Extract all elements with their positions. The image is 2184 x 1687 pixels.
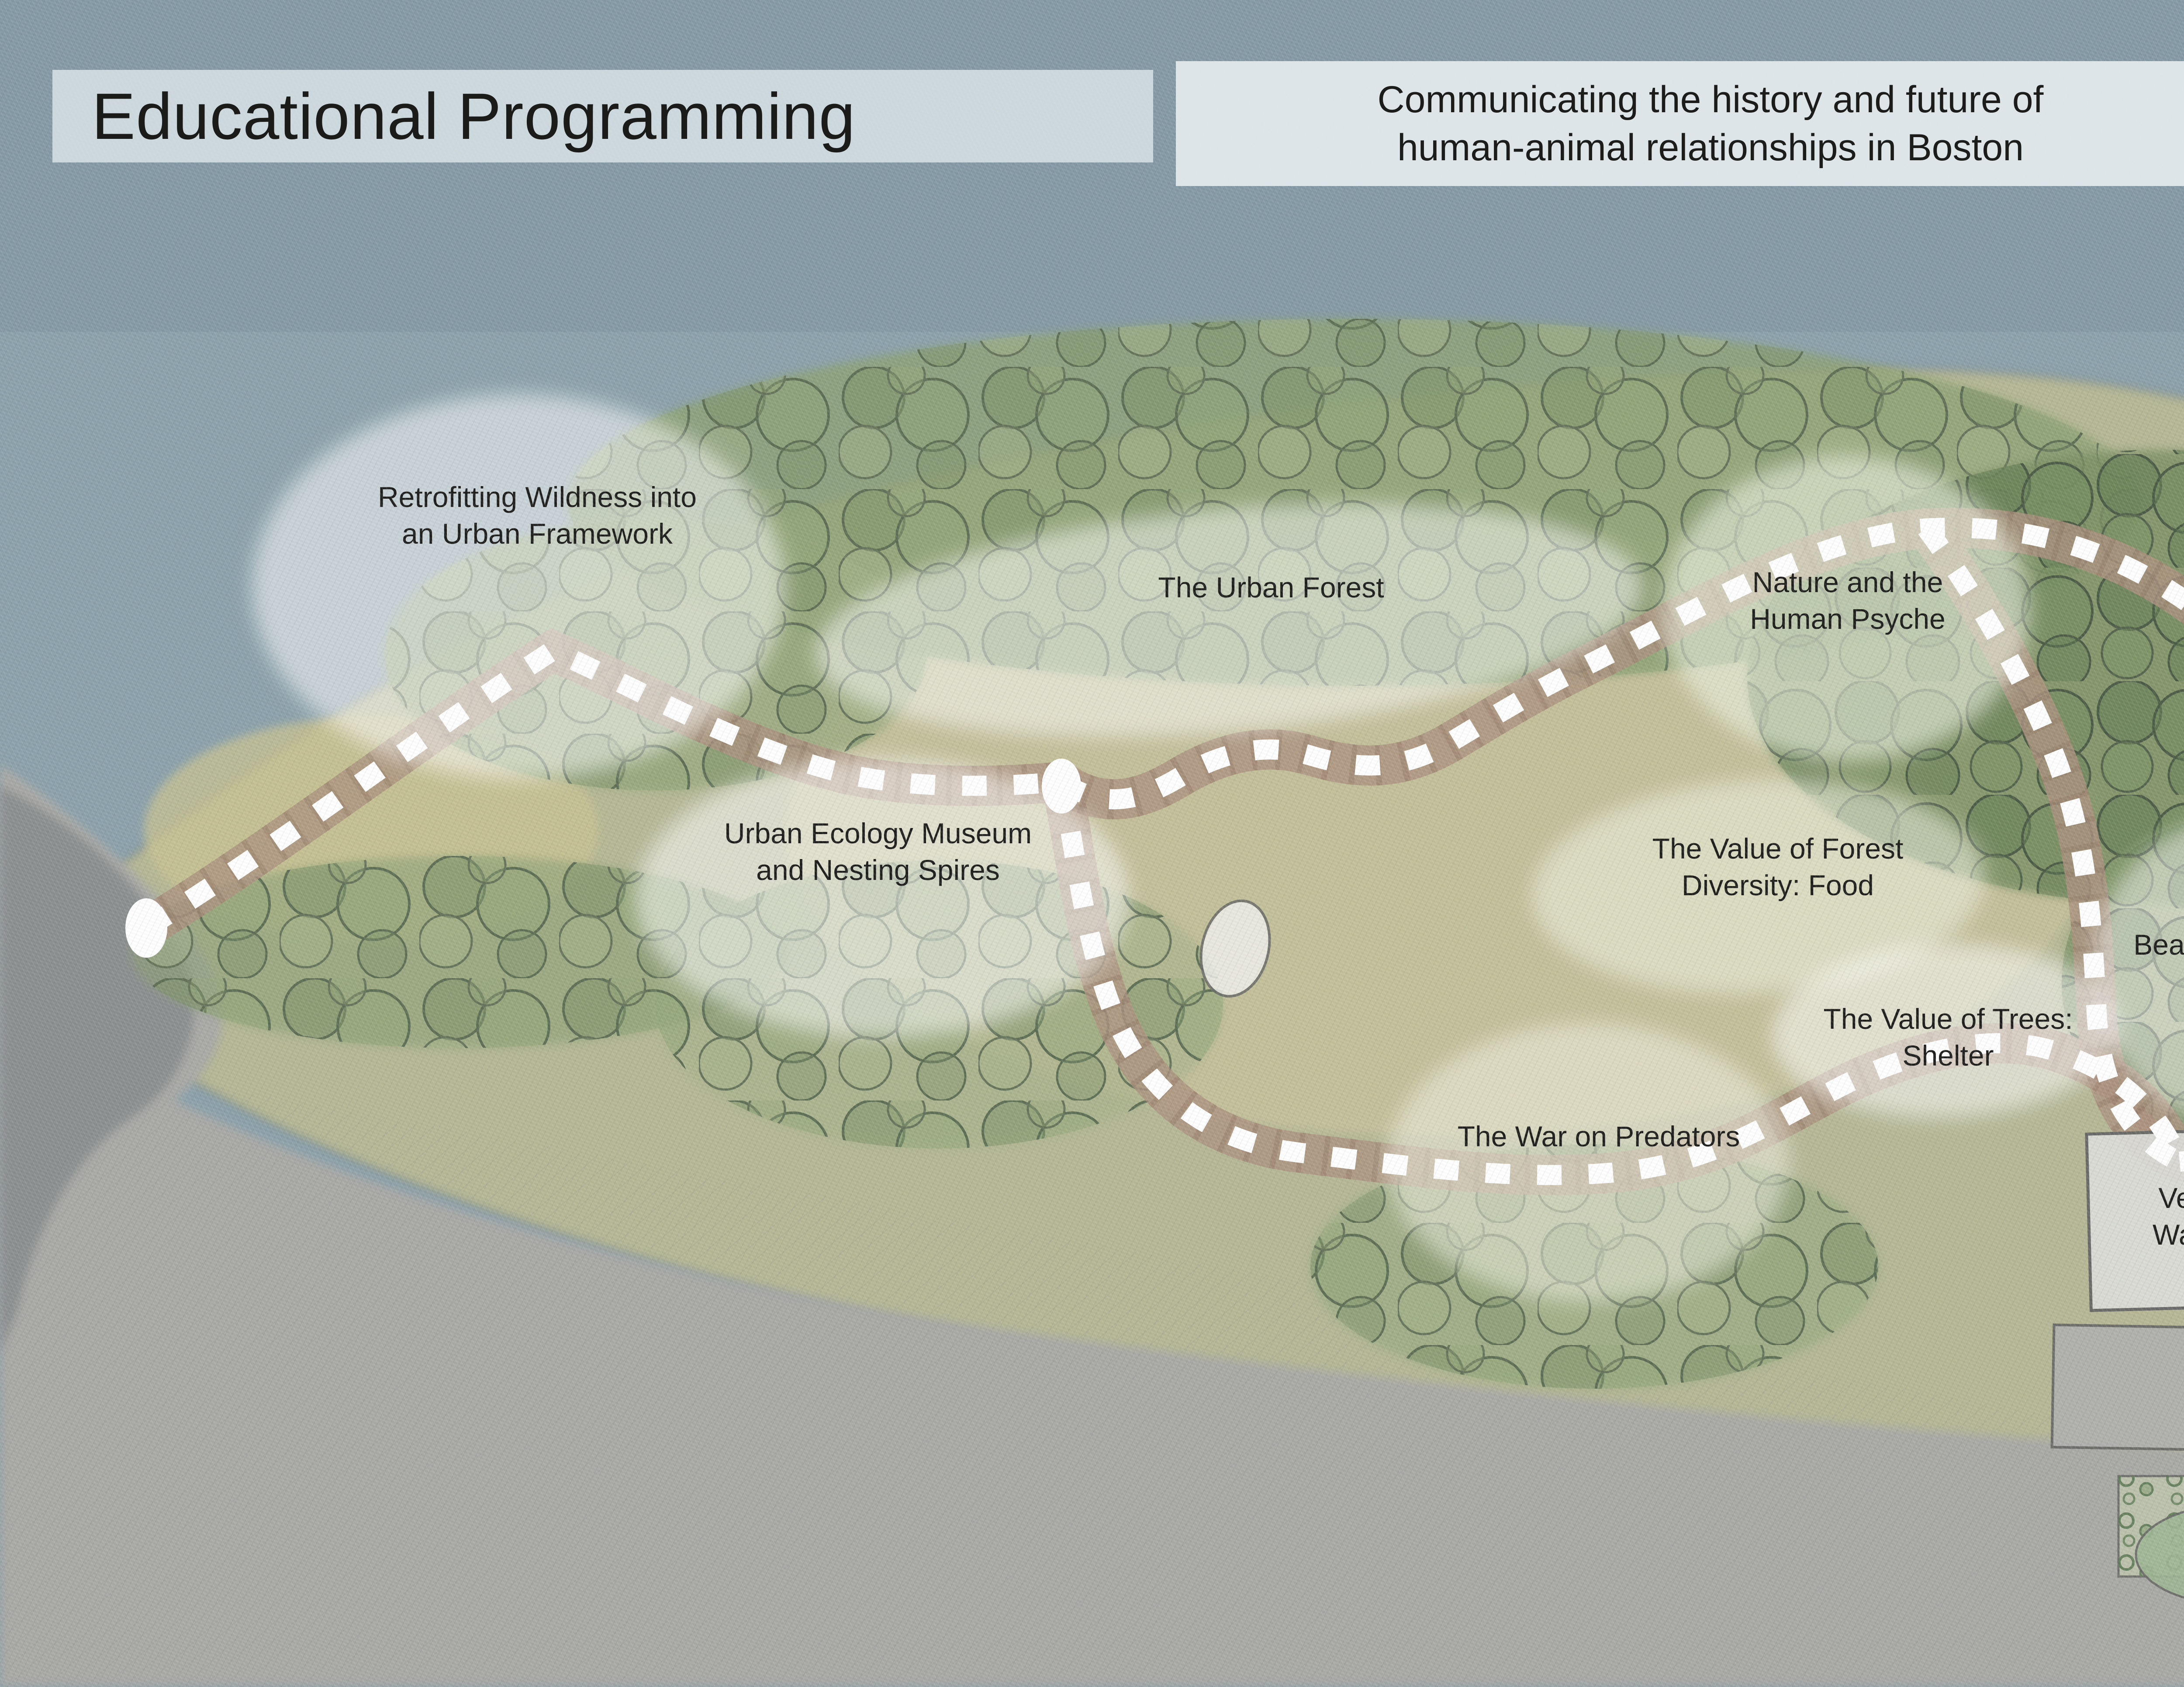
- page-title: Educational Programming: [52, 79, 856, 154]
- site-plan-map: [0, 0, 2184, 1687]
- trail-node-museum: [1042, 759, 1081, 814]
- station-bubble-nature-human-psyche: [1663, 456, 2030, 762]
- page-subtitle: Communicating the history and future of …: [1378, 76, 2044, 172]
- station-bubble-retrofitting-wildness: [252, 394, 785, 779]
- subtitle-box: Communicating the history and future of …: [1176, 61, 2184, 186]
- title-band: Educational Programming: [52, 70, 1153, 162]
- educational-programming-site-plan: Retrofitting Wildness into an Urban Fram…: [0, 0, 2184, 1687]
- museum-building: [2052, 1325, 2184, 1453]
- trail-node-west-end: [125, 898, 167, 958]
